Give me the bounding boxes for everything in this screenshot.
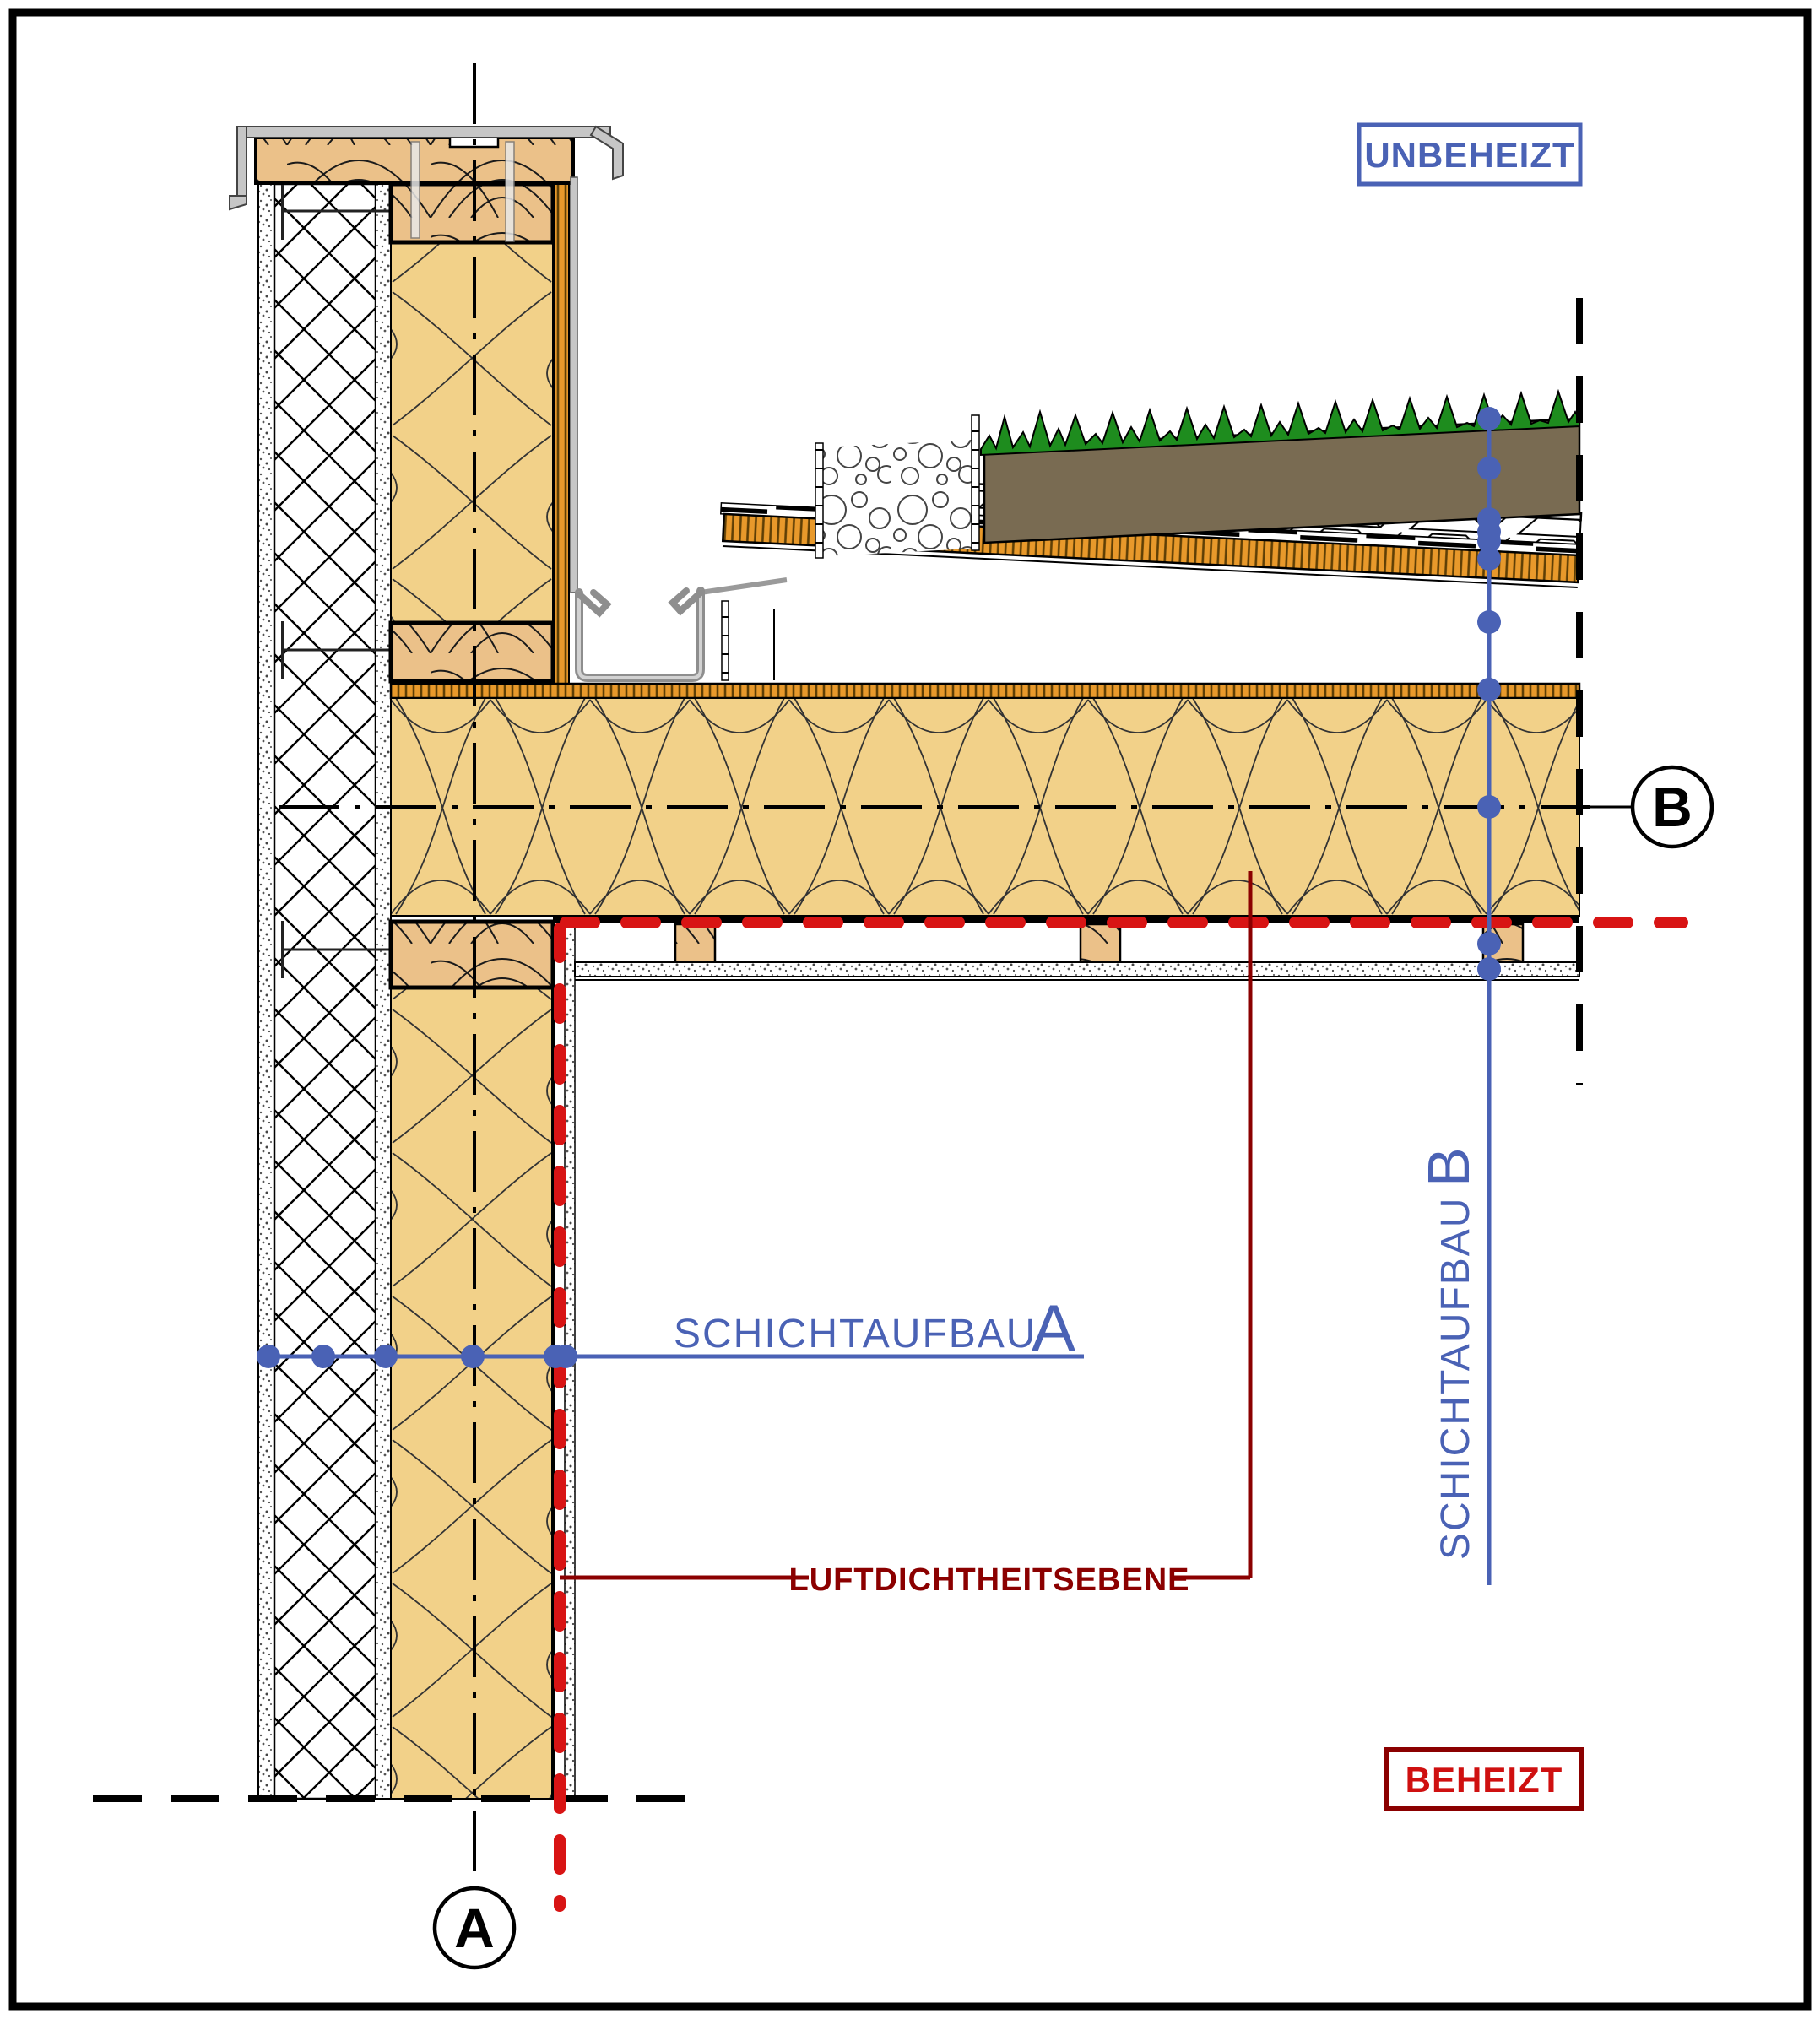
cap-screw: [506, 142, 514, 241]
exterior-wall-assembly: [258, 182, 575, 1799]
middle-plate: [391, 623, 553, 681]
ceiling-batten: [1081, 924, 1120, 962]
cap-screw: [411, 142, 420, 238]
airtightness-label: LUFTDICHTHEITSEBENE: [789, 1562, 1190, 1598]
gravel-edge-profile-left: [815, 443, 823, 558]
section-a-letter: A: [1032, 1291, 1075, 1365]
wall-insulation-upper: [391, 242, 553, 623]
coping-outer-leg: [237, 127, 246, 204]
section-b-letter: B: [1416, 1147, 1481, 1187]
zone-heated: BEHEIZT: [1387, 1750, 1581, 1809]
wall-render-layer: [258, 184, 274, 1799]
gravel-edge-profile-right: [972, 415, 979, 550]
wall-sheathing-layer: [376, 184, 391, 1799]
eave-edge-board: [722, 601, 729, 680]
ceiling-top-board: [391, 684, 1579, 698]
section-a-label: SCHICHTAUFBAU: [674, 1312, 1037, 1356]
gravel-strip: [822, 440, 972, 556]
ceiling-batten: [675, 924, 715, 962]
wall-insulation-lower: [391, 988, 553, 1799]
detail-marker-a: A: [435, 1888, 514, 1968]
ceiling-plasterboard: [575, 962, 1579, 977]
wall-flashing-strip: [571, 177, 577, 593]
bottom-plate: [391, 922, 553, 988]
wall-inner-board-upper: [554, 184, 569, 684]
marker-b-letter: B: [1652, 776, 1693, 838]
detail-marker-b: B: [1633, 767, 1712, 847]
unheated-label: UNBEHEIZT: [1364, 135, 1574, 175]
marker-a-letter: A: [454, 1897, 495, 1959]
wall-fibreboard-layer: [274, 184, 376, 1799]
heated-label: BEHEIZT: [1406, 1760, 1563, 1800]
section-b-label: SCHICHTAUFBAU: [1433, 1197, 1478, 1560]
construction-detail-page: LUFTDICHTHEITSEBENE SCHICHTAUFBAU A SCHI…: [0, 0, 1820, 2019]
zone-unheated: UNBEHEIZT: [1359, 125, 1580, 184]
coping-top: [237, 127, 610, 138]
construction-detail-drawing: LUFTDICHTHEITSEBENE SCHICHTAUFBAU A SCHI…: [0, 0, 1820, 2019]
